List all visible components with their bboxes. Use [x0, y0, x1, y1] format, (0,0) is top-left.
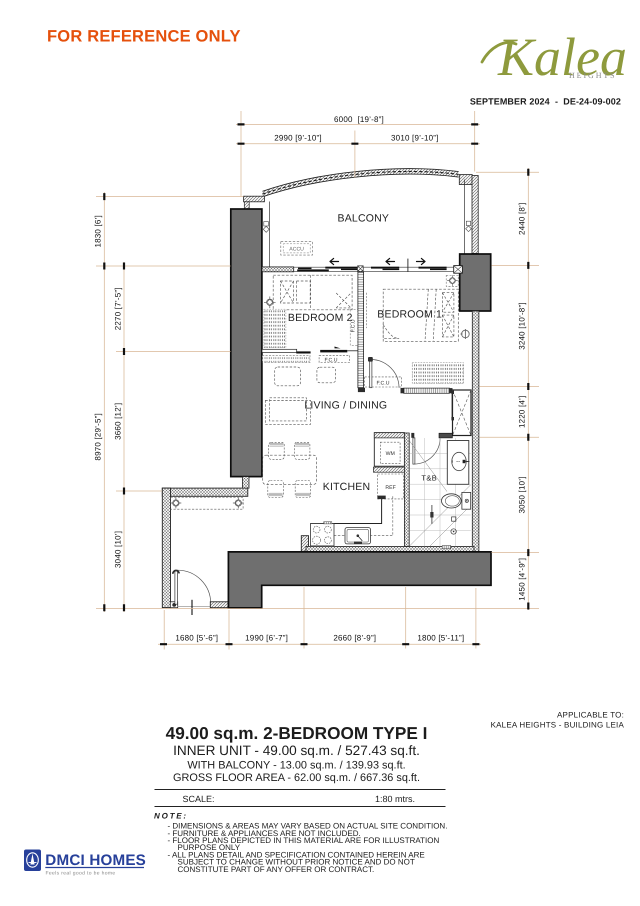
svg-text:1:80 mtrs.: 1:80 mtrs.	[375, 794, 415, 804]
svg-text:REF: REF	[385, 485, 395, 491]
svg-text:2440 [8’]: 2440 [8’]	[518, 203, 527, 236]
svg-text:INNER UNIT - 49.00 sq.m. / 527: INNER UNIT - 49.00 sq.m. / 527.43 sq.ft.	[173, 743, 420, 758]
svg-text:KALEA HEIGHTS - BUILDING LEIA: KALEA HEIGHTS - BUILDING LEIA	[491, 721, 625, 730]
svg-text:3240 [10’-8”]: 3240 [10’-8”]	[518, 302, 527, 350]
svg-text:1990 [6’-7”]: 1990 [6’-7”]	[245, 634, 288, 643]
svg-text:3050 [10’]: 3050 [10’]	[518, 476, 527, 513]
svg-text:2990 [9’-10”]: 2990 [9’-10”]	[274, 134, 322, 143]
svg-text:F.C.U: F.C.U	[377, 380, 390, 386]
svg-text:Feels real good to be home: Feels real good to be home	[46, 871, 116, 877]
svg-text:1830 [6’]: 1830 [6’]	[94, 215, 103, 248]
svg-text:1450 [4’-9”]: 1450 [4’-9”]	[518, 558, 527, 601]
svg-text:8970 [29’-5”]: 8970 [29’-5”]	[94, 413, 103, 461]
svg-text:2660 [8’-9”]: 2660 [8’-9”]	[333, 634, 376, 643]
svg-text:1800 [5’-11”]: 1800 [5’-11”]	[417, 634, 464, 643]
svg-text:NOTE:: NOTE:	[154, 812, 188, 821]
svg-text:GROSS FLOOR AREA - 62.00 sq.m.: GROSS FLOOR AREA - 62.00 sq.m. / 667.36 …	[173, 772, 420, 784]
svg-text:6000 [19’-8”]: 6000 [19’-8”]	[334, 115, 384, 124]
svg-text:APPLICABLE TO:: APPLICABLE TO:	[557, 711, 624, 720]
svg-text:1220 [4’]: 1220 [4’]	[518, 396, 527, 429]
svg-text:BEDROOM 1: BEDROOM 1	[377, 308, 442, 320]
svg-text:3660 [12’]: 3660 [12’]	[113, 403, 122, 440]
svg-text:F.C.U: F.C.U	[325, 357, 338, 363]
svg-text:LIVING / DINING: LIVING / DINING	[304, 400, 387, 412]
svg-text:KITCHEN: KITCHEN	[323, 481, 371, 493]
svg-text:BEDROOM 2: BEDROOM 2	[288, 312, 353, 324]
svg-text:1680 [5’-6”]: 1680 [5’-6”]	[175, 634, 218, 643]
svg-text:3040 [10’]: 3040 [10’]	[113, 531, 122, 568]
svg-text:WITH BALCONY - 13.00 sq.m. / 1: WITH BALCONY - 13.00 sq.m. / 139.93 sq.f…	[187, 760, 405, 772]
svg-text:F.C.U: F.C.U	[351, 319, 357, 332]
svg-text:DMCI HOMES: DMCI HOMES	[45, 852, 146, 869]
svg-text:2270 [7’-5”]: 2270 [7’-5”]	[113, 287, 122, 330]
svg-text:SEPTEMBER 2024 - DE-24-09-00: SEPTEMBER 2024 - DE-24-09-002	[470, 97, 621, 107]
svg-text:BALCONY: BALCONY	[338, 213, 390, 225]
svg-text:T&B: T&B	[421, 473, 437, 482]
svg-text:FOR REFERENCE ONLY: FOR REFERENCE ONLY	[47, 28, 241, 46]
svg-text:WM: WM	[386, 451, 395, 457]
svg-text:HEIGHTS: HEIGHTS	[569, 71, 617, 80]
svg-text:SCALE:: SCALE:	[183, 794, 215, 804]
svg-text:CONSTITUTE PART OF ANY OFFER O: CONSTITUTE PART OF ANY OFFER OR CONTRACT…	[178, 865, 375, 874]
svg-text:3010 [9’-10”]: 3010 [9’-10”]	[391, 134, 439, 143]
svg-text:49.00 sq.m. 2-BEDROOM TYPE I: 49.00 sq.m. 2-BEDROOM TYPE I	[166, 723, 428, 743]
svg-text:ACCU: ACCU	[289, 247, 304, 253]
